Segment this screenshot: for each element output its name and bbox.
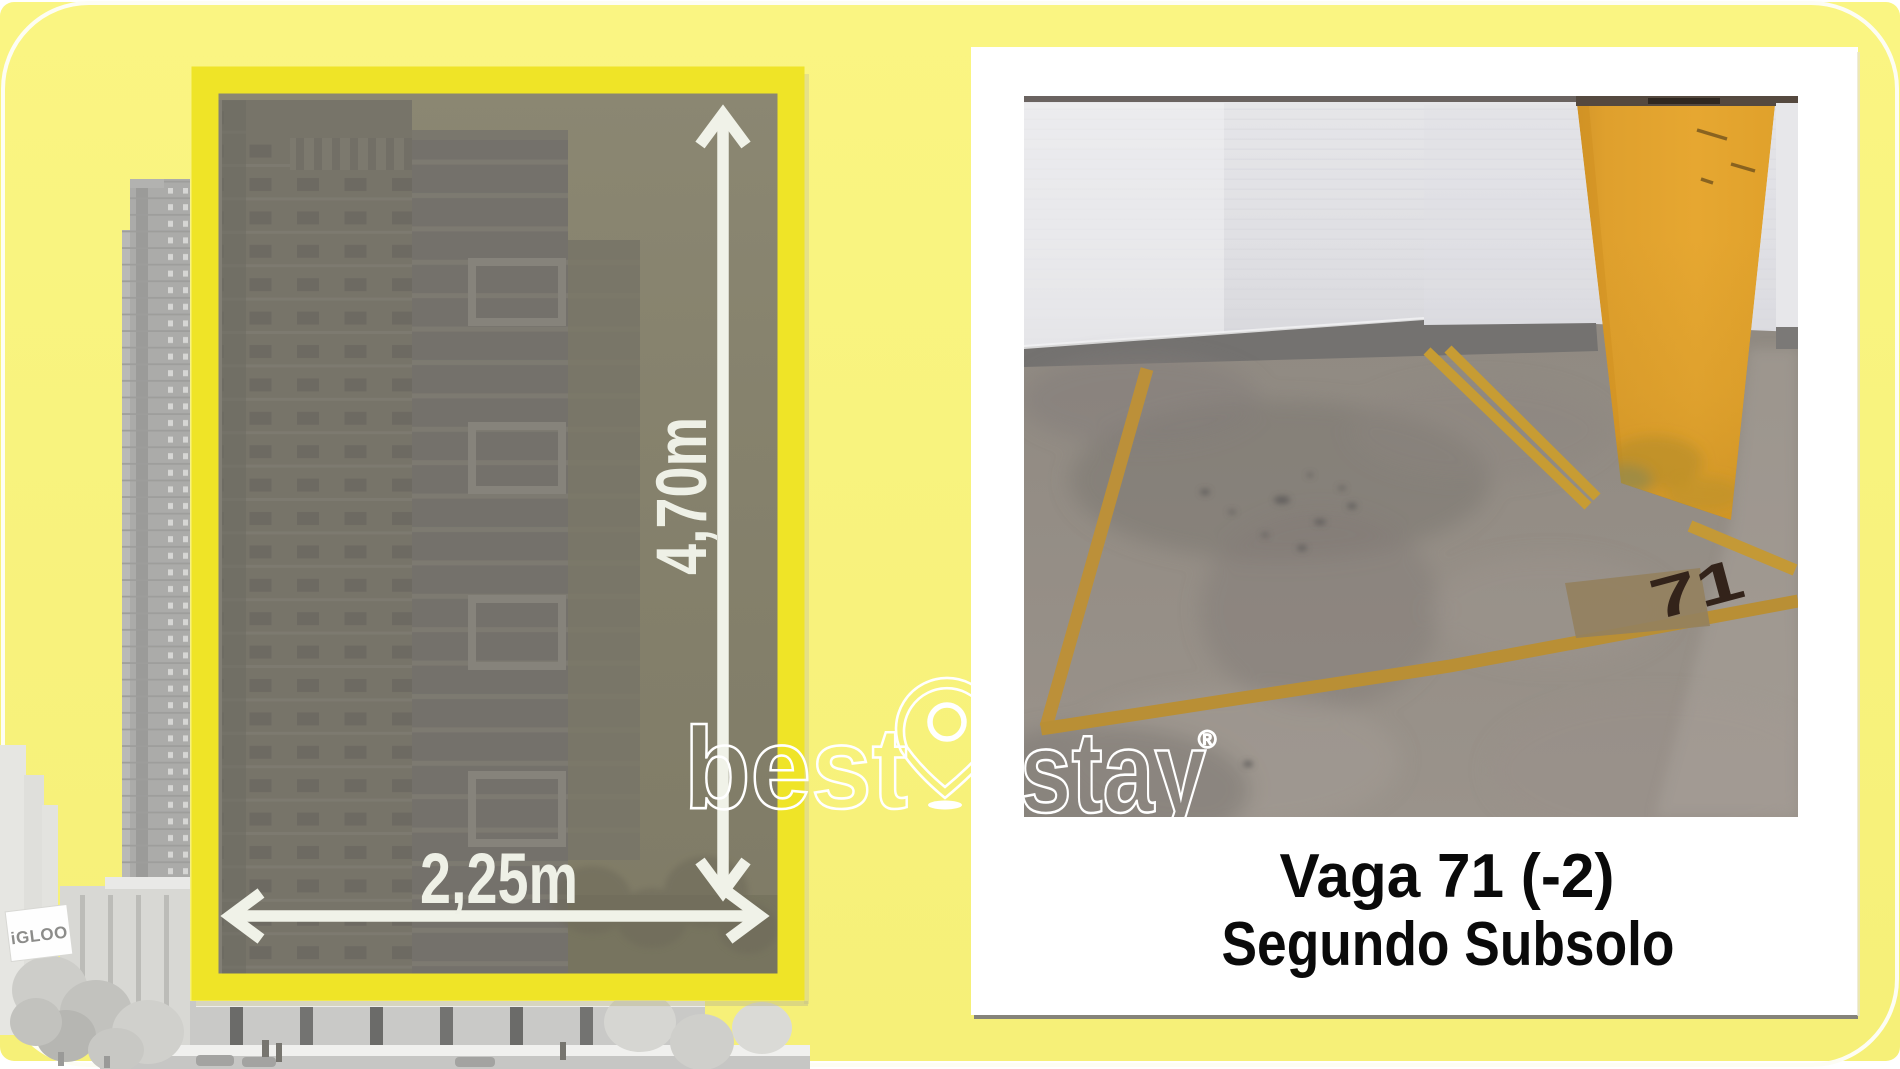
svg-text:Vaga 71 (-2): Vaga 71 (-2): [1280, 842, 1615, 911]
svg-text:®: ®: [1198, 726, 1217, 754]
svg-text:4,70m: 4,70m: [643, 417, 722, 575]
svg-text:stay: stay: [1020, 707, 1206, 837]
svg-text:2,25m: 2,25m: [420, 840, 578, 919]
svg-text:Segundo Subsolo: Segundo Subsolo: [1222, 910, 1675, 979]
svg-text:best: best: [684, 703, 908, 833]
